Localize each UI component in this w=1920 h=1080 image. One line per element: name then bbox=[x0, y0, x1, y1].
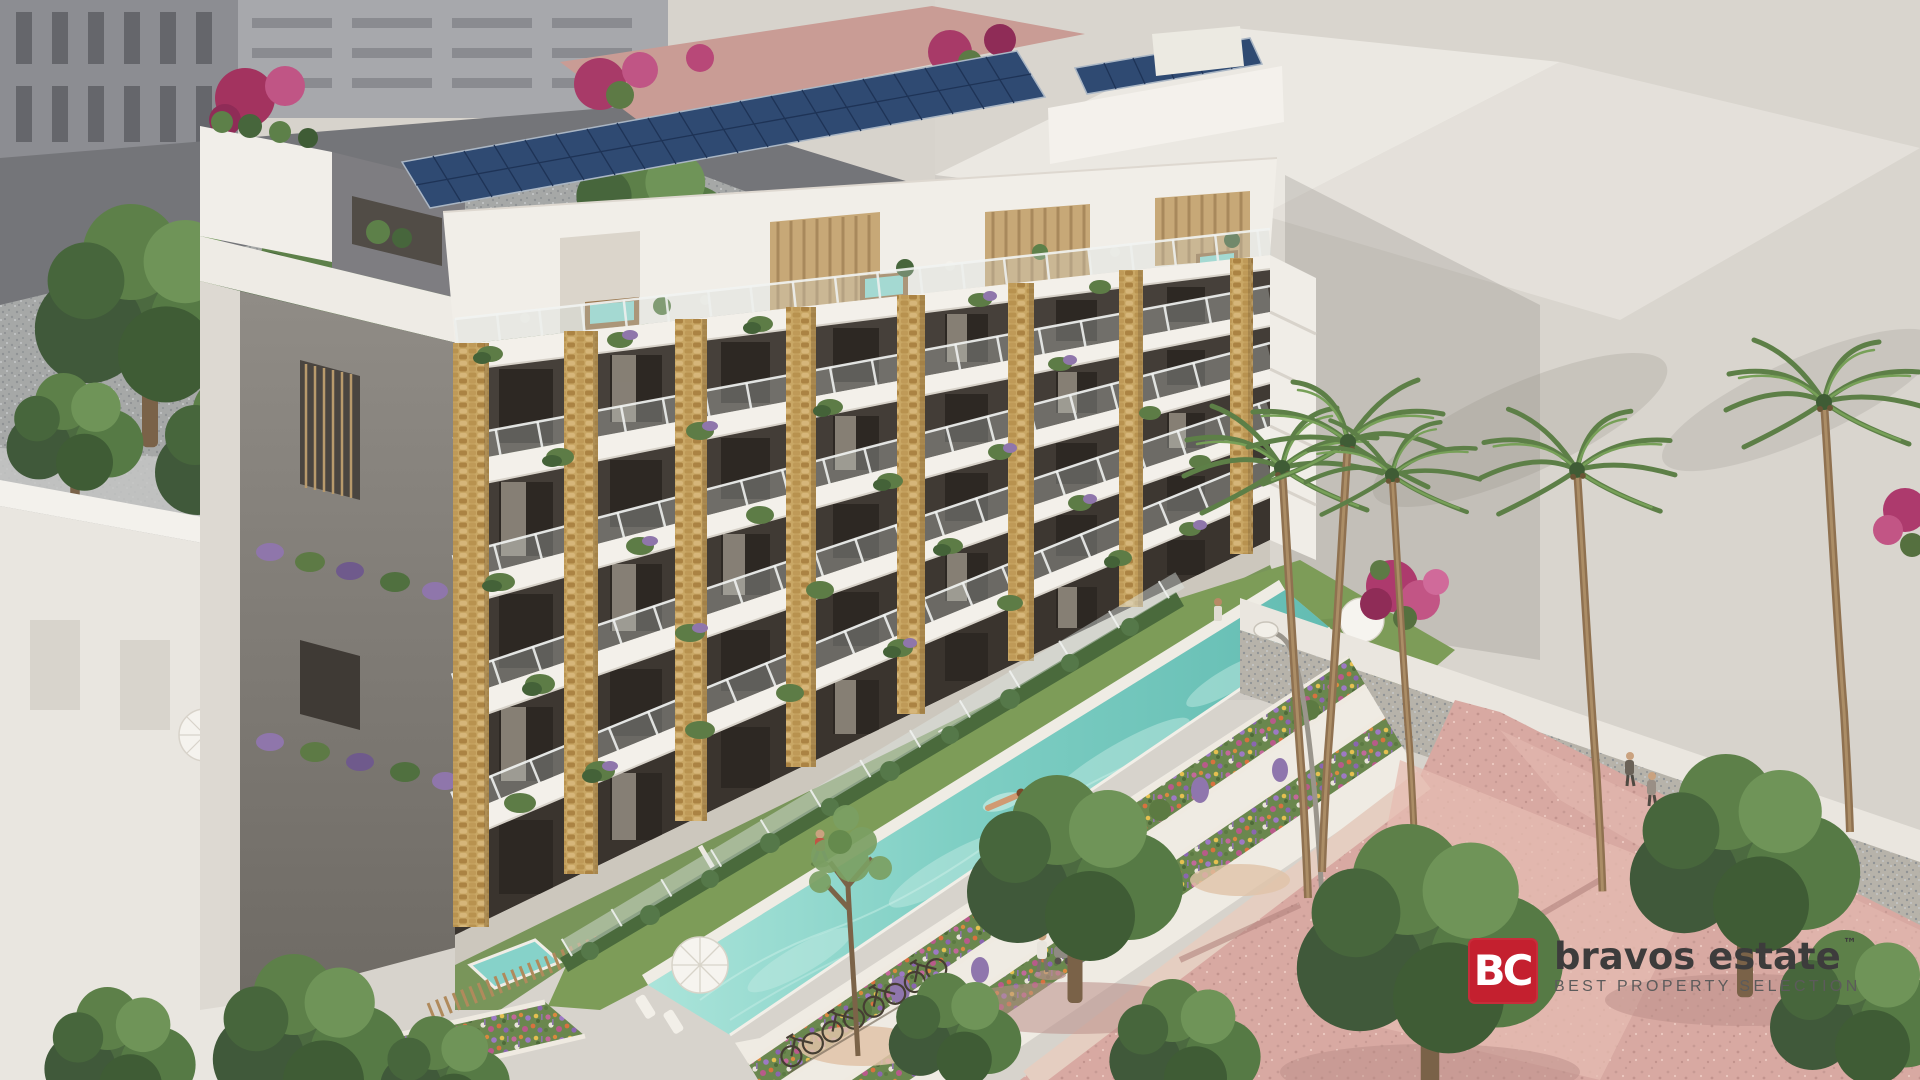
logo-monogram: BC bbox=[1474, 950, 1533, 992]
scene-render bbox=[0, 0, 1920, 1080]
brand-name: bravos estate bbox=[1554, 938, 1841, 975]
logo-text: bravos estate ™ BEST PROPERTY SELECTION bbox=[1554, 938, 1861, 996]
building-right-side bbox=[1270, 255, 1316, 560]
rendered-photo: BC bravos estate ™ BEST PROPERTY SELECTI… bbox=[0, 0, 1920, 1080]
logo-monogram-badge: BC bbox=[1468, 938, 1538, 1004]
logo-watermark: BC bravos estate ™ BEST PROPERTY SELECTI… bbox=[1468, 938, 1861, 1004]
brand-tagline: BEST PROPERTY SELECTION bbox=[1554, 978, 1861, 996]
trademark-symbol: ™ bbox=[1843, 936, 1857, 952]
side-tower bbox=[200, 66, 465, 1010]
